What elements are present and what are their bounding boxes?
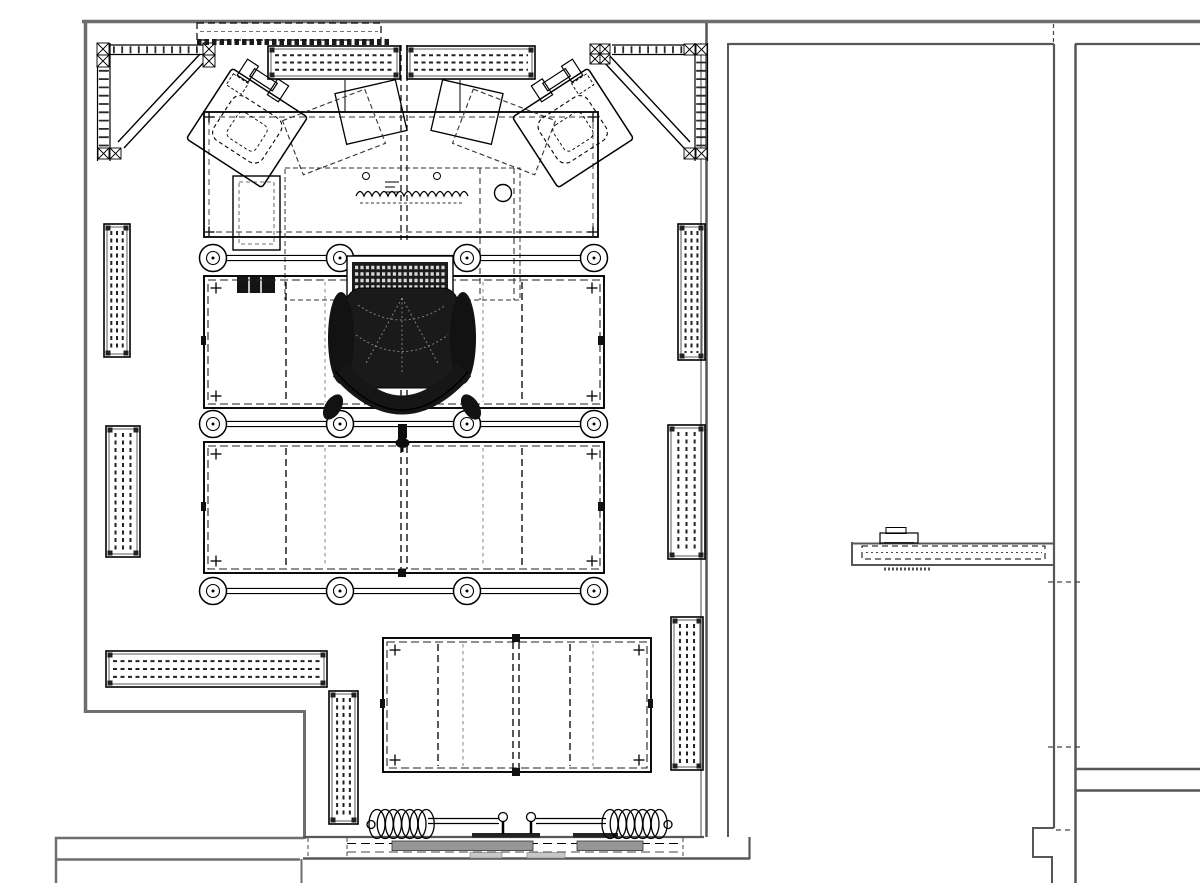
rack-corner-mark [211,283,222,294]
rack-fixing-block [512,768,520,776]
radiator-endcap [106,226,111,231]
slidingdoor-panel-left [392,841,533,851]
doorcloser-anchor-left [367,821,375,829]
radiator-endcap [529,48,534,53]
radiator-endcap [108,551,113,556]
radiator-endcap [270,73,275,78]
radiator-endcap [699,354,704,359]
rack-fixing-block [598,336,603,345]
radiator-bottomleft-horizontal [106,651,327,687]
desk-corner-mark [204,227,215,238]
radiator-inner [109,654,324,684]
frame-column-box [97,55,109,67]
rack-fixing-block [512,634,520,642]
desk-keyboard-squiggle [356,192,468,197]
radiator-endcap [697,619,702,624]
radiator-left-lower [106,426,140,557]
floor-plan-page [0,0,1200,883]
rail-flange-dot [466,257,469,260]
radiator-endcap [673,764,678,769]
rail-flange-dot [339,423,342,426]
radiator-right-middle [668,425,705,559]
radiator-frame [407,46,535,79]
radiator-endcap [134,428,139,433]
rail-flange-dot [593,257,596,260]
rack-corner-mark [634,755,645,766]
radiator-endcap [699,553,704,558]
radiator-top-right [407,46,535,79]
frame-column-box [110,148,121,159]
rack-corner-mark [587,283,598,294]
office-chair-stem [398,424,407,438]
rack-corner-mark [211,449,222,460]
rack-fixing-block [398,569,406,577]
desk-corner-mark [204,112,215,123]
frame-column-box [590,54,600,64]
frame-diagonal-right-b [602,60,684,148]
frame-diagonal-left-a [118,54,200,142]
rack-fixing-block [201,336,206,345]
radiator-endcap [108,428,113,433]
desk-connector-marks [385,182,399,192]
radiator-endcap [673,619,678,624]
rack-corner-mark [211,556,222,567]
radiator-endcap [134,551,139,556]
radiator-right-lower [671,617,703,770]
desk-side-cabinet-inner [239,182,274,244]
cable-curl-left [363,173,370,180]
radiator-endcap [699,427,704,432]
floor-plan-canvas [0,0,1200,883]
desk-corner-mark [588,112,599,123]
radiator-bottom-vertical [329,691,358,824]
radiator-endcap [409,73,414,78]
radiator-endcap [108,653,113,658]
desk-side-cabinet [233,176,280,250]
radiator-endcap [670,427,675,432]
radiator-endcap [529,73,534,78]
frame-column-box [203,55,215,67]
equipment-rack-lower [201,438,604,577]
rail-flange-dot [466,590,469,593]
rack-frame [383,638,651,772]
radiator-endcap [352,818,357,823]
equipment-dark-box [237,277,275,293]
rail-flange-dot [339,257,342,260]
radiator-endcap [680,226,685,231]
radiator-frame [106,426,140,557]
frame-diagonal-right-a [608,54,690,142]
support-rail-bottom [200,578,608,605]
desk-corner-mark [588,227,599,238]
radiator-endcap [670,553,675,558]
rack-corner-mark [390,755,401,766]
radiator-inner [271,49,397,76]
slidingdoor-panel-right [577,841,643,851]
speaker-handle-bridge [543,69,571,91]
rack-corner-mark [390,645,401,656]
doorcloser-spring-right [602,810,667,839]
slidingdoor-guide-right [527,853,565,859]
frame-column-box [696,44,707,55]
radiator-endcap [108,681,113,686]
frame-diagonal-left-b [124,60,206,148]
radiator-endcap [352,693,357,698]
rail-flange-dot [339,590,342,593]
frame-column-box [600,44,610,54]
radiator-endcap [321,653,326,658]
wall-right-notch [1033,828,1054,883]
rail-flange-dot [212,257,215,260]
radiator-inner [109,429,137,554]
speaker-inner-small [225,110,270,154]
radiator-endcap [270,48,275,53]
doorcloser-spring-left [369,810,434,839]
speaker-inner-dashed [209,92,286,167]
radiator-left-upper [104,224,130,357]
office-chair-stem-tip [396,438,410,448]
radiator-top-left [268,46,400,79]
frame-column-box [600,54,610,64]
wall-shelf-bracket [880,533,918,543]
doorcloser-anchor-right [664,821,672,829]
rack-inner-dashed [208,446,600,569]
cable-curl-right [434,173,441,180]
radiator-endcap [124,351,129,356]
frame-column-box [696,148,707,159]
radiator-endcap [409,48,414,53]
radiator-endcap [680,354,685,359]
frame-column-box [97,43,109,55]
frame-column-box [98,148,109,159]
radiator-endcap [321,681,326,686]
rail-flange-dot [593,590,596,593]
radiator-endcap [106,351,111,356]
speaker-body [512,68,633,187]
rack-fixing-block [648,699,653,708]
rack-corner-mark [587,449,598,460]
radiator-endcap [124,226,129,231]
slidingdoor-guide-left [470,853,502,859]
rack-fixing-block [598,502,603,511]
radiator-endcap [699,226,704,231]
monitor-right-dashed [453,89,556,175]
rail-flange-dot [212,590,215,593]
corner-speaker-right [504,55,634,188]
work-table [380,634,653,776]
rack-fixing-block [201,502,206,511]
rack-corner-mark [211,391,222,402]
rack-corner-mark [587,556,598,567]
radiator-endcap [697,764,702,769]
doorcloser-pin-left [499,813,508,822]
frame-column-box [684,148,695,159]
rail-flange-dot [593,423,596,426]
speaker-inner-dashed [534,92,611,167]
radiator-endcap [331,818,336,823]
rack-inner-dashed [387,642,647,768]
rack-corner-mark [587,391,598,402]
frame-column-box [590,44,600,54]
doorcloser-pin-right [527,813,536,822]
desk-cup [495,185,512,202]
rack-frame [204,442,604,573]
radiator-endcap [394,73,399,78]
rail-flange-dot [212,423,215,426]
radiator-endcap [331,693,336,698]
radiator-endcap [394,48,399,53]
frame-column-box [684,44,695,55]
rack-fixing-block [380,699,385,708]
rack-corner-mark [634,645,645,656]
doorcloser-bracket-right [573,833,618,838]
rail-flange-dot [466,423,469,426]
